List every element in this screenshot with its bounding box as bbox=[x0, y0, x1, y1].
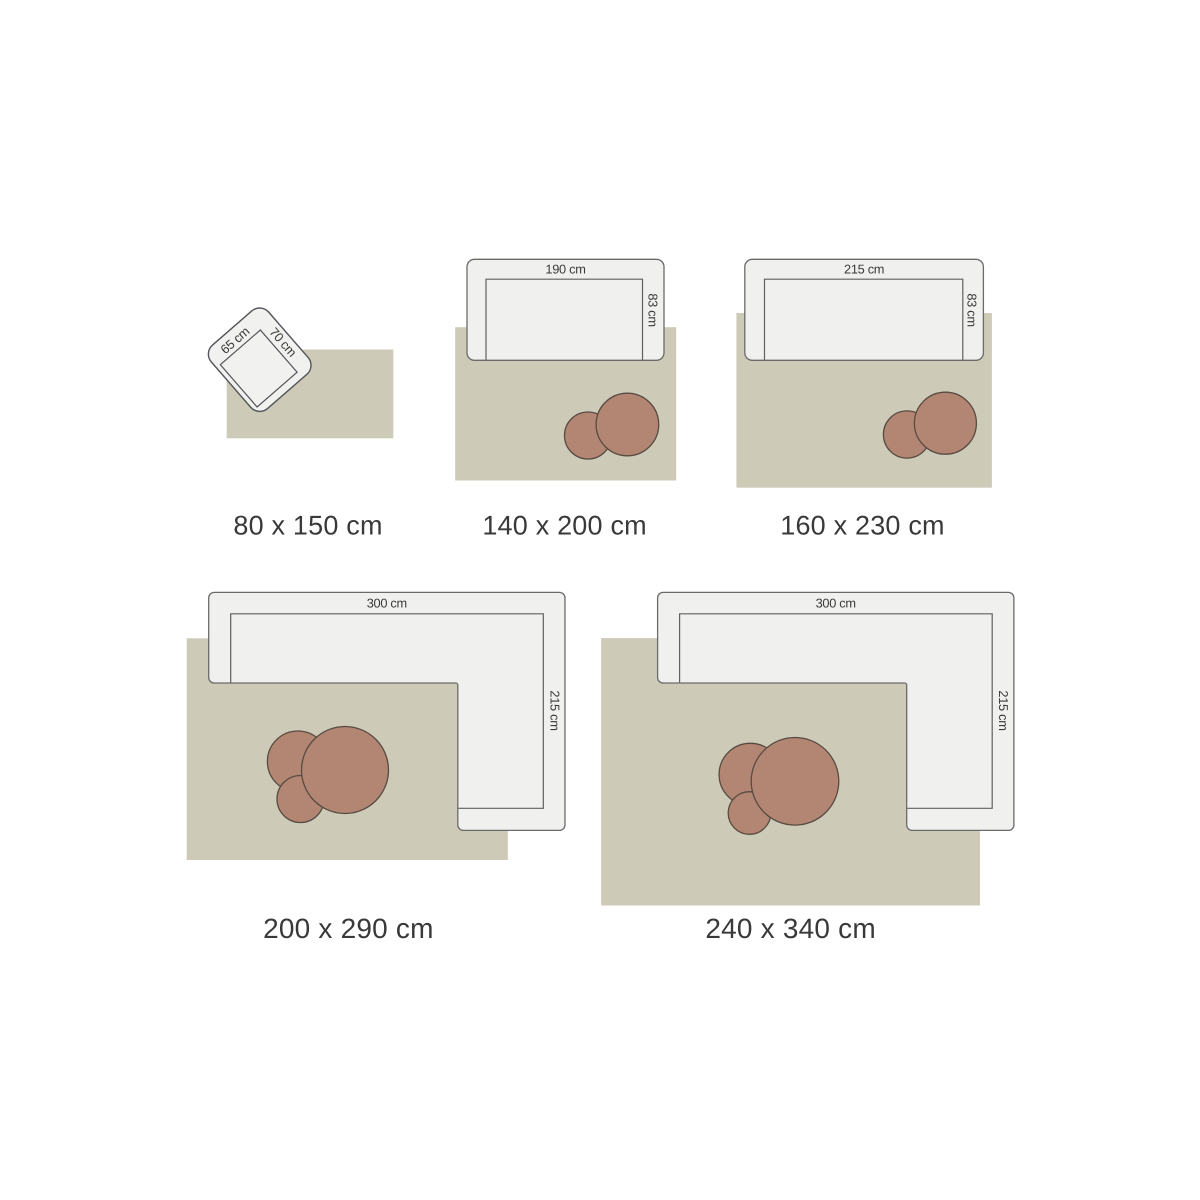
svg-text:300 cm: 300 cm bbox=[816, 596, 856, 611]
svg-text:83 cm: 83 cm bbox=[965, 293, 980, 326]
svg-text:215 cm: 215 cm bbox=[844, 262, 884, 277]
svg-text:160 x 230 cm: 160 x 230 cm bbox=[780, 511, 945, 541]
svg-text:140 x 200 cm: 140 x 200 cm bbox=[482, 511, 647, 541]
svg-text:190 cm: 190 cm bbox=[545, 262, 585, 277]
svg-text:240 x 340 cm: 240 x 340 cm bbox=[705, 913, 876, 944]
svg-text:215 cm: 215 cm bbox=[996, 690, 1011, 730]
svg-text:200 x 290 cm: 200 x 290 cm bbox=[263, 913, 434, 944]
svg-text:83 cm: 83 cm bbox=[646, 293, 661, 326]
svg-text:300 cm: 300 cm bbox=[367, 596, 407, 611]
svg-text:215 cm: 215 cm bbox=[547, 690, 562, 730]
svg-text:80 x 150 cm: 80 x 150 cm bbox=[233, 511, 382, 541]
